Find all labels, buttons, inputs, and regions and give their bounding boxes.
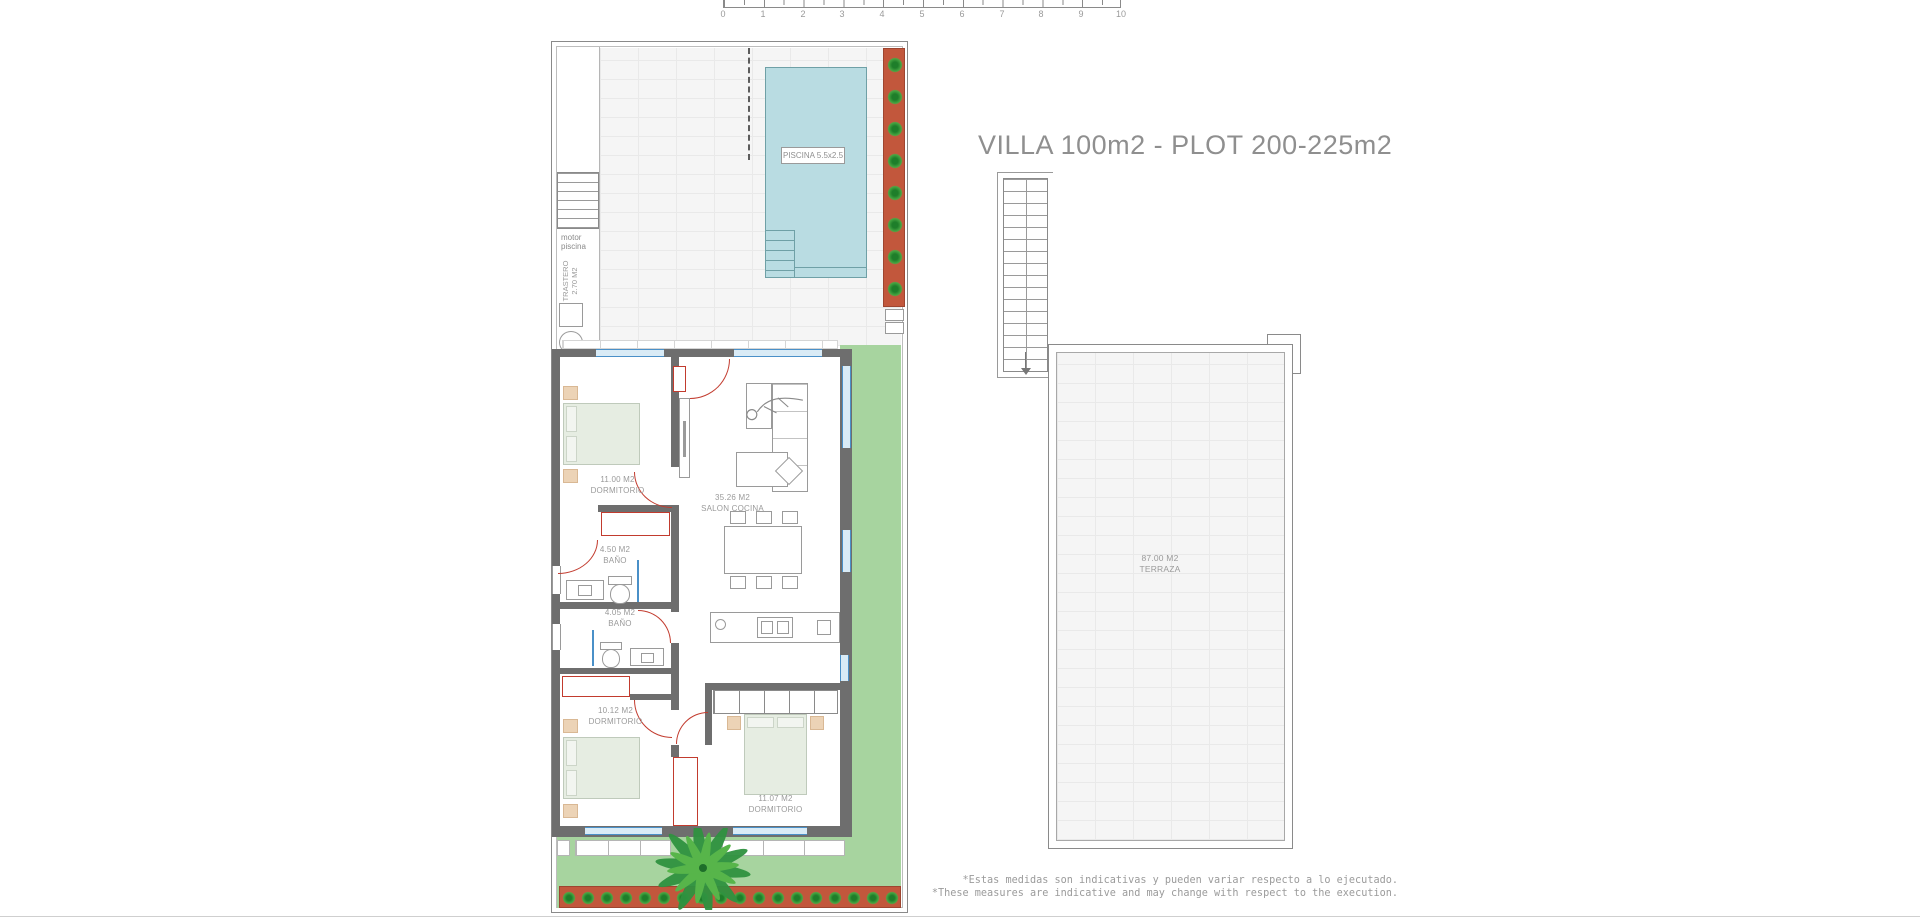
scale-tick-label: 2: [793, 9, 813, 19]
wardrobe: [713, 690, 838, 714]
built-in-closet: [562, 676, 630, 697]
room-label-bathroom1: 4.50 M2 BAÑO: [585, 544, 645, 566]
window: [842, 366, 851, 448]
swimming-pool: [765, 67, 867, 278]
pool-shelf-line: [795, 267, 867, 268]
nightstand: [810, 716, 824, 730]
palm-tree-icon: [648, 828, 758, 910]
scale-tick-label: 0: [713, 9, 733, 19]
island-module: [817, 620, 831, 635]
bed-pillow: [777, 717, 804, 728]
bed-pillow: [566, 436, 577, 462]
built-in-closet: [601, 512, 670, 536]
nightstand: [727, 716, 741, 730]
dining-chair: [782, 511, 798, 524]
scale-tick-label: 8: [1031, 9, 1051, 19]
roof-stairs: [1003, 178, 1048, 372]
pool-steps: [765, 230, 795, 278]
scale-tick-label: 5: [912, 9, 932, 19]
terrace-paving: [1056, 352, 1285, 841]
scale-tick-label: 10: [1111, 9, 1131, 19]
bed-pillow: [566, 770, 577, 796]
exterior-stairs: [557, 172, 599, 229]
interior-wall: [671, 505, 679, 612]
bathroom-sink: [630, 648, 664, 666]
covered-area-dashed-line: [748, 48, 750, 160]
shower-screen: [637, 560, 639, 602]
page-bottom-rule: [0, 916, 1920, 917]
paver-band-top: [562, 340, 838, 349]
nightstand: [563, 386, 578, 400]
scale-tick-label: 9: [1071, 9, 1091, 19]
tv-cabinet: [679, 398, 690, 478]
planter-end-box: [885, 322, 904, 334]
scale-bar-minor-ticks: [724, 0, 1120, 5]
room-name: DORMITORIO: [573, 716, 658, 727]
footnote-english: *These measures are indicative and may c…: [898, 888, 1398, 901]
scale-bar: [723, 0, 1121, 8]
toilet: [608, 576, 632, 604]
dining-chair: [782, 576, 798, 589]
dining-chair: [756, 576, 772, 589]
nightstand: [563, 804, 578, 818]
window-left-wall: [552, 624, 561, 650]
bathroom-sink: [566, 580, 604, 600]
room-area: 4.50 M2: [585, 544, 645, 555]
room-area: 10.12 M2: [573, 705, 658, 716]
bed-pillow: [747, 717, 774, 728]
cooktop-burner: [761, 621, 773, 634]
storage-equipment-box: [559, 303, 583, 327]
toilet-bowl: [602, 649, 620, 668]
room-label-bathroom2: 4.05 M2 BAÑO: [590, 607, 650, 629]
window: [734, 349, 822, 357]
stairs-direction-arrow-icon: [1021, 368, 1031, 375]
window: [840, 655, 849, 681]
interior-wall: [671, 745, 679, 757]
page-title: VILLA 100m2 - PLOT 200-225m2: [978, 130, 1392, 161]
planter-strip-right: [883, 48, 905, 307]
bed-pillow: [566, 406, 577, 432]
interior-wall: [560, 668, 672, 674]
footnotes: *Estas medidas son indicativas y pueden …: [898, 875, 1398, 900]
bed: [563, 737, 640, 799]
kitchen-sink-icon: [715, 619, 726, 630]
sink-basin: [641, 653, 654, 663]
room-label-bedroom3: 11.07 M2 DORMITORIO: [733, 793, 818, 815]
window: [596, 349, 664, 357]
stairs-direction-line: [1025, 352, 1026, 368]
room-area: 35.26 M2: [690, 492, 775, 503]
floorplan-sheet: 0 1 2 3 4 5 6 7 8 9 10 VILLA 100m2 - PLO…: [0, 0, 1920, 920]
room-area: 11.00 M2: [575, 474, 660, 485]
dining-chair: [730, 576, 746, 589]
sink-basin: [578, 585, 592, 596]
room-area: 4.05 M2: [590, 607, 650, 618]
room-label-terrace: 87.00 M2 TERRAZA: [1100, 553, 1220, 575]
scale-tick-label: 4: [872, 9, 892, 19]
toilet: [600, 642, 622, 668]
kitchen-island: [710, 612, 840, 643]
room-name: BAÑO: [590, 618, 650, 629]
garden-paver: [557, 840, 570, 856]
room-area: 11.07 M2: [733, 793, 818, 804]
built-in-closet: [673, 757, 698, 826]
footnote-spanish: *Estas medidas son indicativas y pueden …: [898, 875, 1398, 888]
window: [842, 530, 851, 572]
toilet-bowl: [610, 584, 630, 604]
dining-table: [724, 526, 802, 574]
room-name: DORMITORIO: [733, 804, 818, 815]
bed: [563, 403, 640, 465]
cooktop: [757, 617, 793, 638]
room-label-bedroom1: 11.00 M2 DORMITORIO: [575, 474, 660, 496]
room-name: SALON COCINA: [690, 503, 775, 514]
shower-screen: [592, 630, 594, 666]
room-area: 87.00 M2: [1100, 553, 1220, 564]
bed-pillow: [566, 740, 577, 766]
bed: [744, 714, 807, 795]
cooktop-burner: [777, 621, 789, 634]
scale-tick-label: 1: [753, 9, 773, 19]
tv-screen: [683, 421, 686, 457]
interior-wall: [705, 683, 840, 690]
room-name: DORMITORIO: [575, 485, 660, 496]
room-label-bedroom2: 10.12 M2 DORMITORIO: [573, 705, 658, 727]
pool-label-box: PISCINA 5.5x2.5: [781, 147, 845, 164]
room-name: BAÑO: [585, 555, 645, 566]
scale-tick-label: 7: [992, 9, 1012, 19]
planter-end-box: [885, 309, 904, 321]
stairs-center-rail: [1026, 179, 1027, 371]
entrance-side-panel: [673, 366, 686, 392]
pool-label: PISCINA 5.5x2.5: [783, 151, 843, 160]
scale-tick-label: 6: [952, 9, 972, 19]
room-label-salon: 35.26 M2 SALON COCINA: [690, 492, 775, 514]
room-name: TERRAZA: [1100, 564, 1220, 575]
scale-tick-label: 3: [832, 9, 852, 19]
pool-motor-line1: motor: [561, 233, 586, 242]
